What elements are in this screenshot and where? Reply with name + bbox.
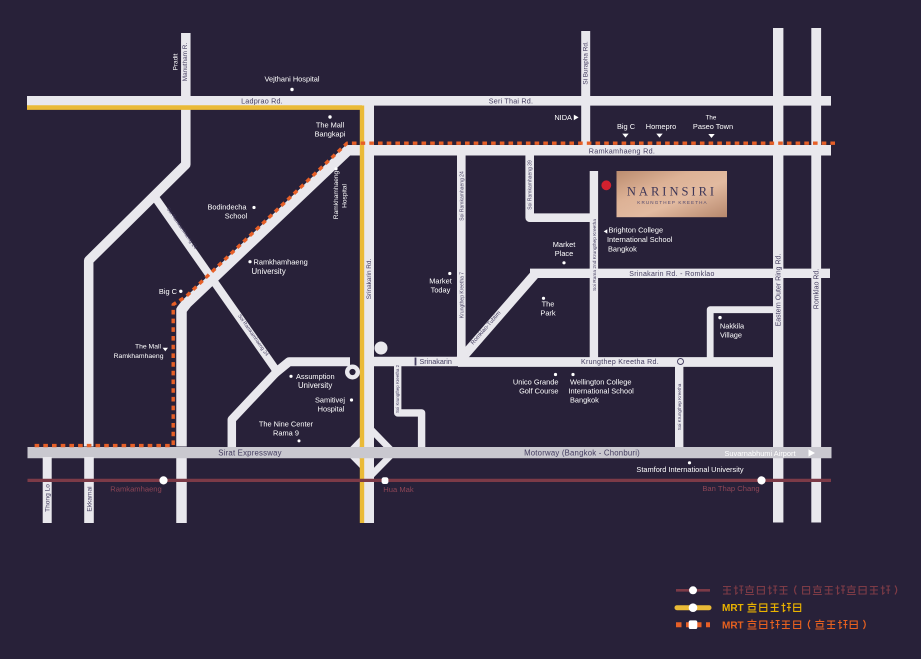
svg-text:Bangkok: Bangkok (608, 244, 637, 253)
svg-text:Ramkhamhaeng: Ramkhamhaeng (254, 258, 308, 267)
svg-text:Ladprao Rd.: Ladprao Rd. (241, 96, 283, 105)
svg-text:Assumption: Assumption (296, 372, 335, 381)
svg-text:Eastern Outer Ring Rd.: Eastern Outer Ring Rd. (776, 254, 783, 327)
svg-text:Suvarnabhumi Airport: Suvarnabhumi Airport (724, 449, 795, 458)
svg-text:Market: Market (553, 240, 576, 249)
svg-text:Ramkhamhaeng: Ramkhamhaeng (114, 353, 164, 360)
svg-text:The: The (706, 115, 717, 122)
svg-text:Unico Grande: Unico Grande (513, 378, 559, 387)
svg-text:Soi Ramkamhaeng 39: Soi Ramkamhaeng 39 (528, 160, 534, 210)
svg-text:Srinakarin: Srinakarin (420, 357, 452, 366)
svg-text:Soi Rama 2nd Krungthep Kreetha: Soi Rama 2nd Krungthep Kreetha (592, 219, 598, 291)
svg-text:Village: Village (720, 330, 742, 339)
svg-text:MRT: MRT (722, 603, 744, 614)
svg-text:School: School (225, 211, 248, 220)
svg-text:Hospital: Hospital (318, 404, 345, 413)
svg-text:Si Burapha Rd.: Si Burapha Rd. (583, 41, 590, 85)
svg-text:Ramkamhaeng: Ramkamhaeng (110, 484, 162, 493)
svg-text:Today: Today (431, 286, 451, 295)
svg-text:Hospital: Hospital (342, 184, 349, 208)
svg-text:Sirat Expressway: Sirat Expressway (218, 449, 281, 458)
svg-text:Ban Thap Chang: Ban Thap Chang (702, 484, 759, 493)
svg-text:Hua Mak: Hua Mak (383, 485, 414, 494)
svg-text:Srinakarin Rd. - Romklao: Srinakarin Rd. - Romklao (629, 271, 714, 278)
svg-text:Pradit: Pradit (172, 53, 179, 70)
svg-text:NIDA: NIDA (554, 113, 572, 122)
svg-text:Seri Thai Rd.: Seri Thai Rd. (489, 96, 533, 105)
svg-text:Manutham R.: Manutham R. (182, 43, 189, 82)
svg-text:Soi Krungthep Kreetha: Soi Krungthep Kreetha (677, 383, 682, 430)
svg-text:Stamford International Univers: Stamford International University (636, 465, 744, 474)
svg-text:Soi Krungthep Kreetha 2: Soi Krungthep Kreetha 2 (395, 364, 400, 413)
svg-text:Vejthani Hospital: Vejthani Hospital (264, 75, 319, 84)
svg-text:Brighton College: Brighton College (609, 226, 664, 235)
svg-text:Srinakarin Rd.: Srinakarin Rd. (366, 259, 373, 300)
svg-text:The: The (542, 300, 555, 309)
svg-text:Bangkok: Bangkok (570, 396, 599, 405)
svg-text:NARINSIRI: NARINSIRI (627, 185, 717, 199)
svg-text:Thong Lo: Thong Lo (45, 484, 52, 512)
svg-text:Ekkamai: Ekkamai (86, 486, 93, 512)
svg-text:Golf Course: Golf Course (519, 387, 558, 396)
svg-text:The Mall: The Mall (135, 344, 162, 351)
svg-text:Bodindecha: Bodindecha (207, 203, 247, 212)
svg-text:Big C: Big C (617, 122, 636, 131)
svg-text:The Nine Center: The Nine Center (259, 419, 314, 428)
svg-text:International School: International School (569, 387, 635, 396)
svg-text:Krungthep Kreetha 7: Krungthep Kreetha 7 (459, 272, 465, 318)
svg-text:International School: International School (607, 235, 673, 244)
svg-text:Park: Park (540, 309, 556, 318)
svg-text:Ramkamhaeng Rd.: Ramkamhaeng Rd. (589, 146, 655, 155)
svg-text:Motorway (Bangkok - Chonburi): Motorway (Bangkok - Chonburi) (524, 449, 640, 458)
svg-text:Paseo Town: Paseo Town (693, 122, 733, 131)
svg-text:University: University (298, 381, 332, 390)
svg-text:Samitivej: Samitivej (315, 395, 345, 404)
svg-text:Bangkapi: Bangkapi (315, 129, 346, 138)
svg-text:MRT: MRT (722, 620, 744, 631)
svg-text:Homepro: Homepro (646, 122, 676, 131)
svg-text:Soi Ramkamhaeng 24: Soi Ramkamhaeng 24 (459, 171, 465, 221)
svg-text:Big C: Big C (159, 287, 178, 296)
svg-text:Romklao Rd.: Romklao Rd. (814, 269, 821, 310)
svg-text:Rama 9: Rama 9 (273, 428, 299, 437)
svg-text:KRUNGTHEP KREETHA: KRUNGTHEP KREETHA (637, 200, 707, 205)
svg-text:The Mall: The Mall (316, 120, 345, 129)
svg-text:Krungthep Kreetha Rd.: Krungthep Kreetha Rd. (581, 359, 659, 366)
svg-text:Place: Place (555, 249, 574, 258)
svg-text:University: University (252, 267, 286, 276)
svg-text:Wellington College: Wellington College (570, 378, 632, 387)
svg-text:Market: Market (429, 277, 452, 286)
svg-text:Ramkhamhaeng: Ramkhamhaeng (333, 170, 340, 219)
svg-text:Nakkila: Nakkila (720, 321, 745, 330)
